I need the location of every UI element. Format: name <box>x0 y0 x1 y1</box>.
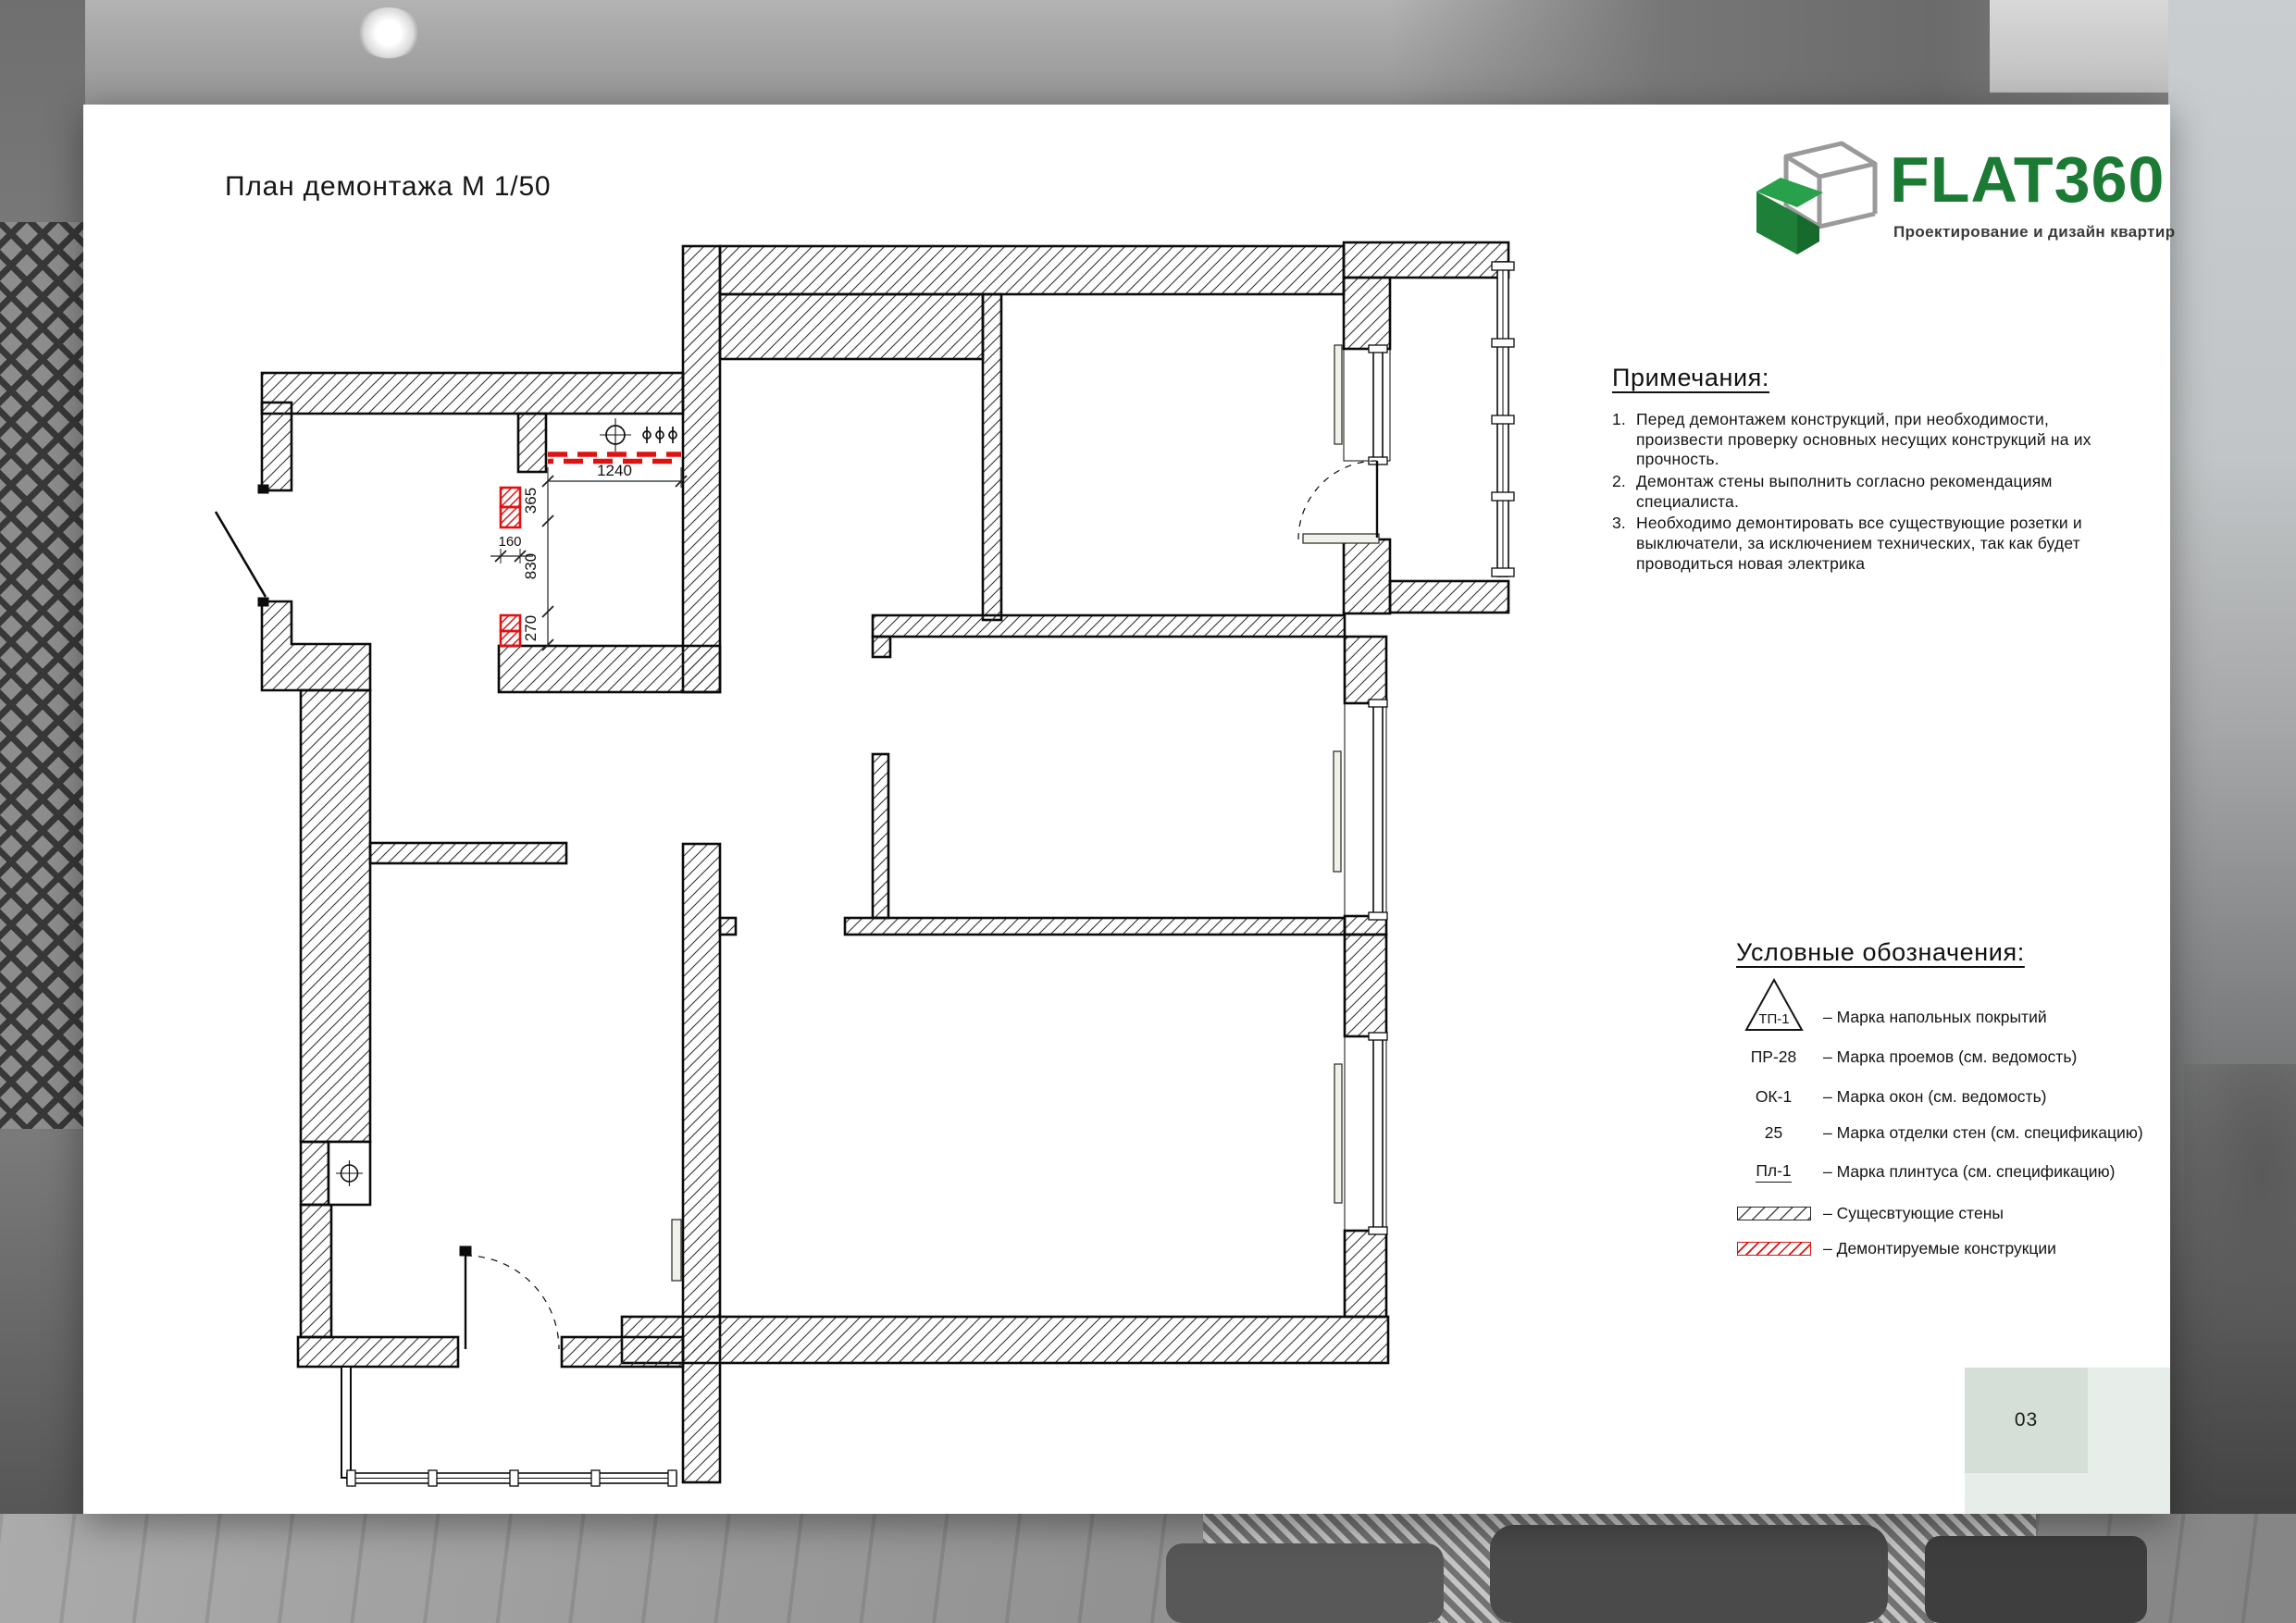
electrical-symbol <box>600 418 676 452</box>
photo-right-furniture <box>2184 1064 2296 1342</box>
wall-hall-bottom <box>370 843 566 863</box>
radiators-group <box>672 345 1379 1281</box>
dim-365: 365 <box>522 488 540 514</box>
screenshot-root: План демонтажа М 1/50 FLAT360 Проектиров… <box>0 0 2296 1623</box>
wall-left-corner <box>262 601 370 690</box>
radiator <box>1303 534 1379 543</box>
radiator <box>1334 751 1341 872</box>
wall-beside-shaft <box>301 1142 329 1205</box>
demolition-stub <box>501 507 520 527</box>
wall-outer-top <box>720 246 1344 294</box>
wall-stub <box>873 637 890 657</box>
pier-right-3 <box>1345 935 1386 1036</box>
door-bl-balcony-swing <box>465 1256 559 1349</box>
pier-right-1 <box>1345 637 1386 703</box>
photo-right-window <box>2168 0 2296 1623</box>
demolition-stub <box>501 488 520 507</box>
wall-left-lower <box>301 1205 331 1337</box>
wall-entry-left <box>262 403 292 490</box>
window-balcony-left <box>1373 349 1383 461</box>
radiator <box>672 1220 681 1281</box>
wall-main-vertical <box>683 844 720 1482</box>
wall-left-vertical <box>301 690 370 1142</box>
wall-hall-top <box>262 373 683 414</box>
wall-corridor-partition <box>873 754 888 918</box>
wall-roomA-inner-top <box>720 294 983 359</box>
photo-chair-right <box>1925 1536 2147 1623</box>
pier-right-4 <box>1345 1231 1386 1317</box>
wall-bl-bottom-left <box>298 1337 458 1367</box>
window-mid-right <box>1373 703 1383 916</box>
wall-bath-right <box>683 246 720 692</box>
wall-bottom-long <box>622 1317 1388 1363</box>
existing-walls-group <box>262 242 1508 1482</box>
wall-bl-bottom-right <box>562 1337 683 1367</box>
wall-center-partition <box>983 294 1001 620</box>
door-balcony-swing <box>1298 461 1377 539</box>
wall-stub <box>720 918 736 935</box>
dim-830: 830 <box>522 553 540 579</box>
pier-balcony-top <box>1344 278 1390 349</box>
pier-balcony-bottom <box>1344 539 1390 613</box>
thin-walls-group <box>329 1142 370 1478</box>
dim-1240: 1240 <box>597 462 632 479</box>
photo-table <box>1490 1525 1888 1623</box>
door-entry-leaf <box>216 512 266 597</box>
photo-ceiling-light <box>356 7 421 58</box>
photo-chair <box>1166 1543 1444 1623</box>
window-bottom-right <box>1373 1036 1383 1231</box>
wall-bath-stub <box>518 414 546 472</box>
photo-shelf-lattice <box>0 222 85 1129</box>
demolition-stub <box>501 615 520 631</box>
wall-balcony-top <box>1344 242 1508 278</box>
wall-bath-bottom <box>499 646 720 692</box>
dim-270: 270 <box>522 615 540 641</box>
floor-plan: 1240 365 830 270 160 <box>83 105 2170 1514</box>
drawing-sheet: План демонтажа М 1/50 FLAT360 Проектиров… <box>83 105 2170 1514</box>
demolition-stub <box>501 631 520 646</box>
wall-lower-room-top <box>845 918 1345 935</box>
doors-group <box>216 461 1377 1349</box>
wall-balcony-left-thin <box>341 1367 351 1478</box>
wall-under-balcony <box>1390 581 1508 613</box>
wall-mid-horizontal <box>873 615 1345 637</box>
radiator <box>1334 1064 1342 1203</box>
radiator <box>1334 345 1342 444</box>
dim-160: 160 <box>498 534 521 550</box>
